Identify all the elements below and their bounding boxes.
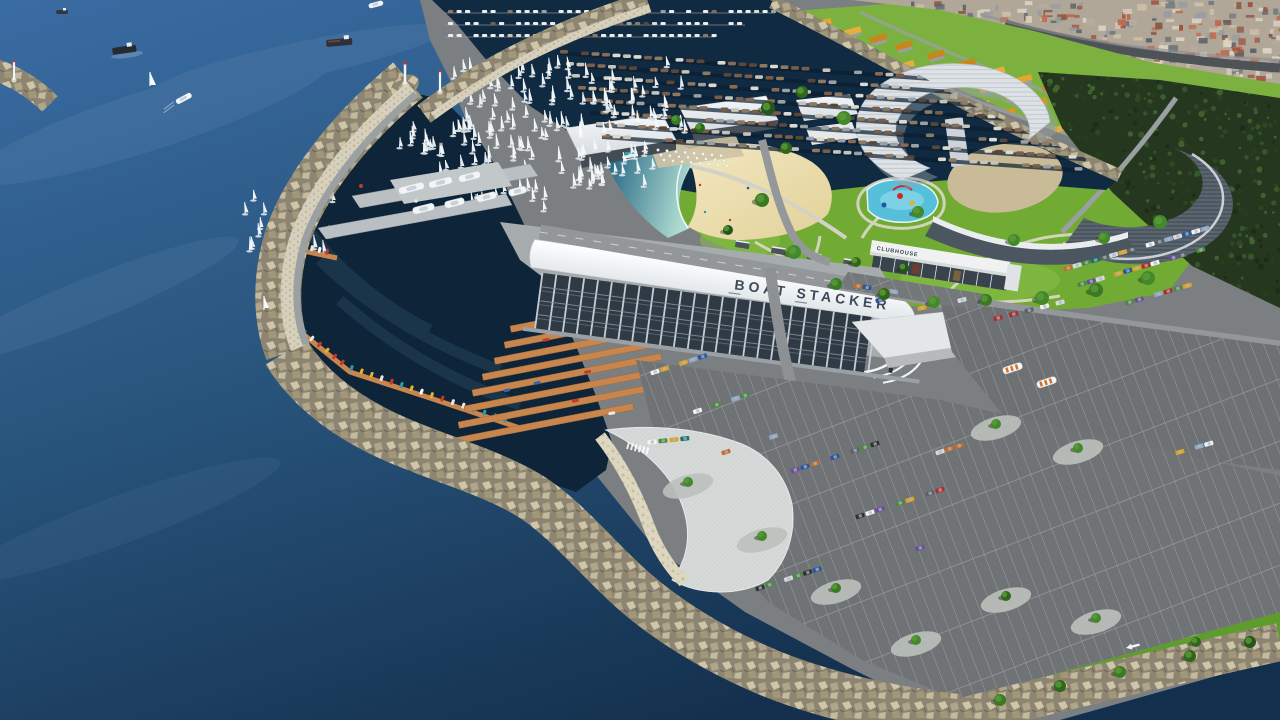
waterpark-pool: [867, 180, 938, 223]
kayak: [414, 199, 418, 203]
marina-scene: CLUBHOUSE: [0, 0, 1280, 720]
marina-render-canvas: CLUBHOUSE: [0, 0, 1280, 720]
kayak: [359, 184, 363, 188]
